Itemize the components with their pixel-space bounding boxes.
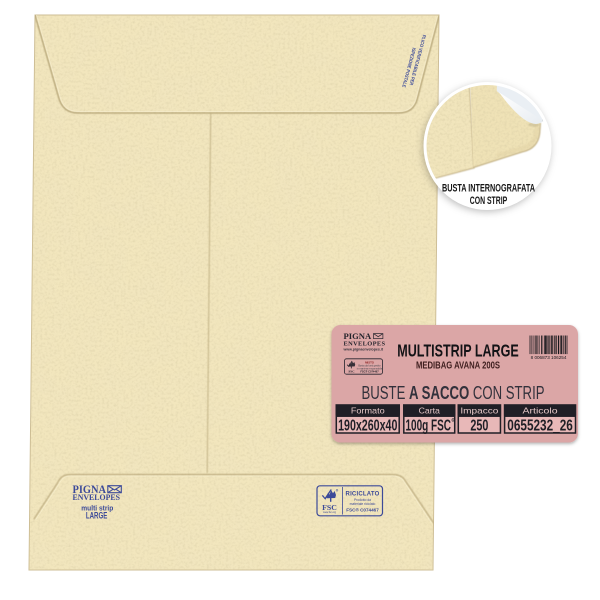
svg-text:PIGNA: PIGNA xyxy=(344,331,372,341)
svg-text:LARGE: LARGE xyxy=(86,510,108,520)
svg-text:www.pignaenvelopes.it: www.pignaenvelopes.it xyxy=(343,347,384,351)
svg-text:MULTISTRIP LARGE: MULTISTRIP LARGE xyxy=(397,341,519,361)
svg-text:MEDIBAG AVANA 200S: MEDIBAG AVANA 200S xyxy=(416,360,500,371)
svg-text:250: 250 xyxy=(470,417,488,434)
svg-text:ENVELOPES: ENVELOPES xyxy=(73,493,121,502)
svg-text:RICICLATO: RICICLATO xyxy=(346,492,380,498)
svg-text:FSC® C074467: FSC® C074467 xyxy=(346,507,379,513)
svg-text:BUSTA INTERNOGRAFATA: BUSTA INTERNOGRAFATA xyxy=(442,182,535,194)
svg-text:FSC: FSC xyxy=(348,369,355,373)
svg-text:Formato: Formato xyxy=(351,405,385,415)
svg-text:www.fsc.org: www.fsc.org xyxy=(323,511,337,514)
svg-text:BUSTE A SACCO CON STRIP: BUSTE A SACCO CON STRIP xyxy=(362,382,545,403)
svg-text:®: ® xyxy=(452,417,456,424)
svg-text:8 006873 106254: 8 006873 106254 xyxy=(531,355,567,360)
svg-text:Carta: Carta xyxy=(419,405,441,415)
svg-text:FSC® C074467: FSC® C074467 xyxy=(360,370,379,374)
svg-text:Articolo: Articolo xyxy=(523,405,558,415)
svg-text:100g FSC: 100g FSC xyxy=(406,417,452,434)
svg-text:0655232_26: 0655232_26 xyxy=(507,417,573,434)
svg-text:190x260x40: 190x260x40 xyxy=(338,417,397,434)
svg-text:CON STRIP: CON STRIP xyxy=(470,195,508,207)
svg-text:materiale riciclato: materiale riciclato xyxy=(350,502,376,506)
svg-text:Impacco: Impacco xyxy=(460,405,498,415)
